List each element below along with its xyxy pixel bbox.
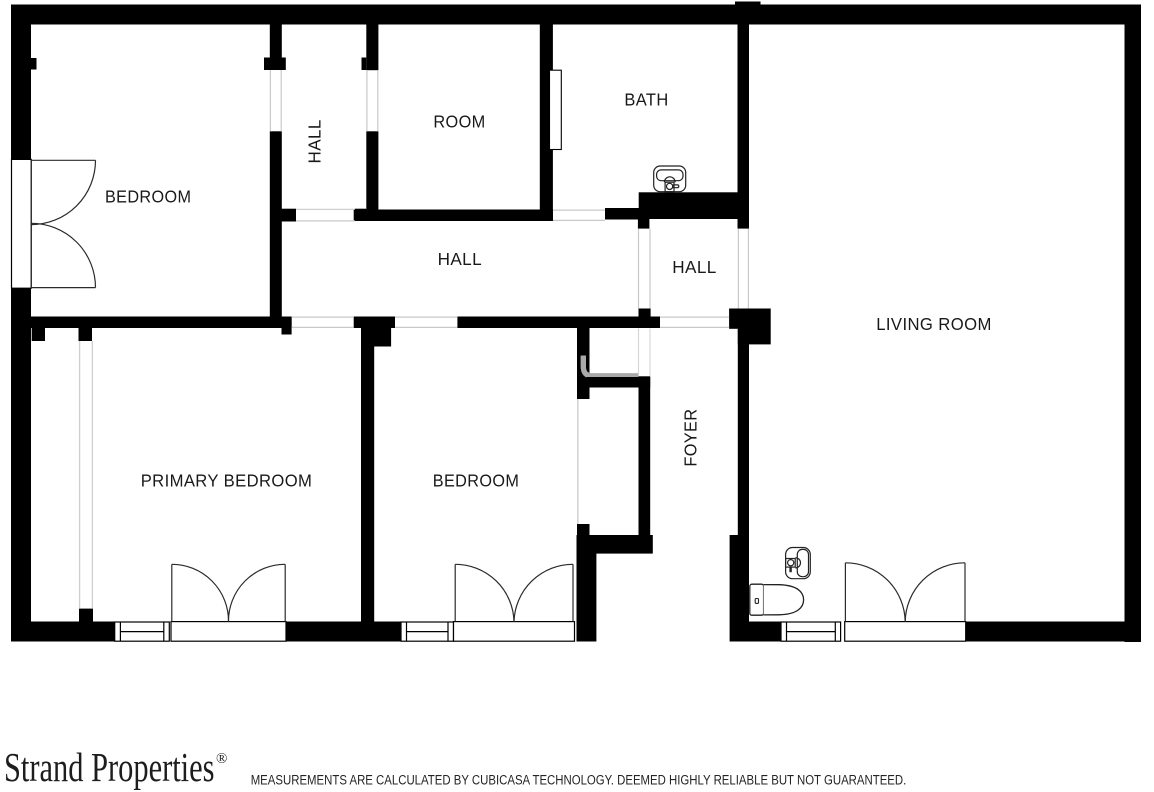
svg-text:PRIMARY BEDROOM: PRIMARY BEDROOM: [141, 470, 313, 490]
svg-text:BATH: BATH: [624, 89, 668, 109]
svg-text:Strand Properties: Strand Properties: [4, 744, 214, 790]
svg-text:MEASUREMENTS ARE CALCULATED BY: MEASUREMENTS ARE CALCULATED BY CUBICASA …: [251, 771, 907, 787]
svg-text:®: ®: [216, 751, 227, 767]
svg-text:BEDROOM: BEDROOM: [433, 470, 520, 490]
svg-text:FOYER: FOYER: [680, 409, 700, 467]
svg-text:LIVING ROOM: LIVING ROOM: [876, 314, 992, 334]
svg-text:BEDROOM: BEDROOM: [105, 187, 192, 207]
svg-text:HALL: HALL: [438, 249, 482, 269]
svg-text:ROOM: ROOM: [433, 111, 485, 131]
svg-text:HALL: HALL: [672, 257, 716, 277]
svg-text:HALL: HALL: [305, 119, 325, 163]
